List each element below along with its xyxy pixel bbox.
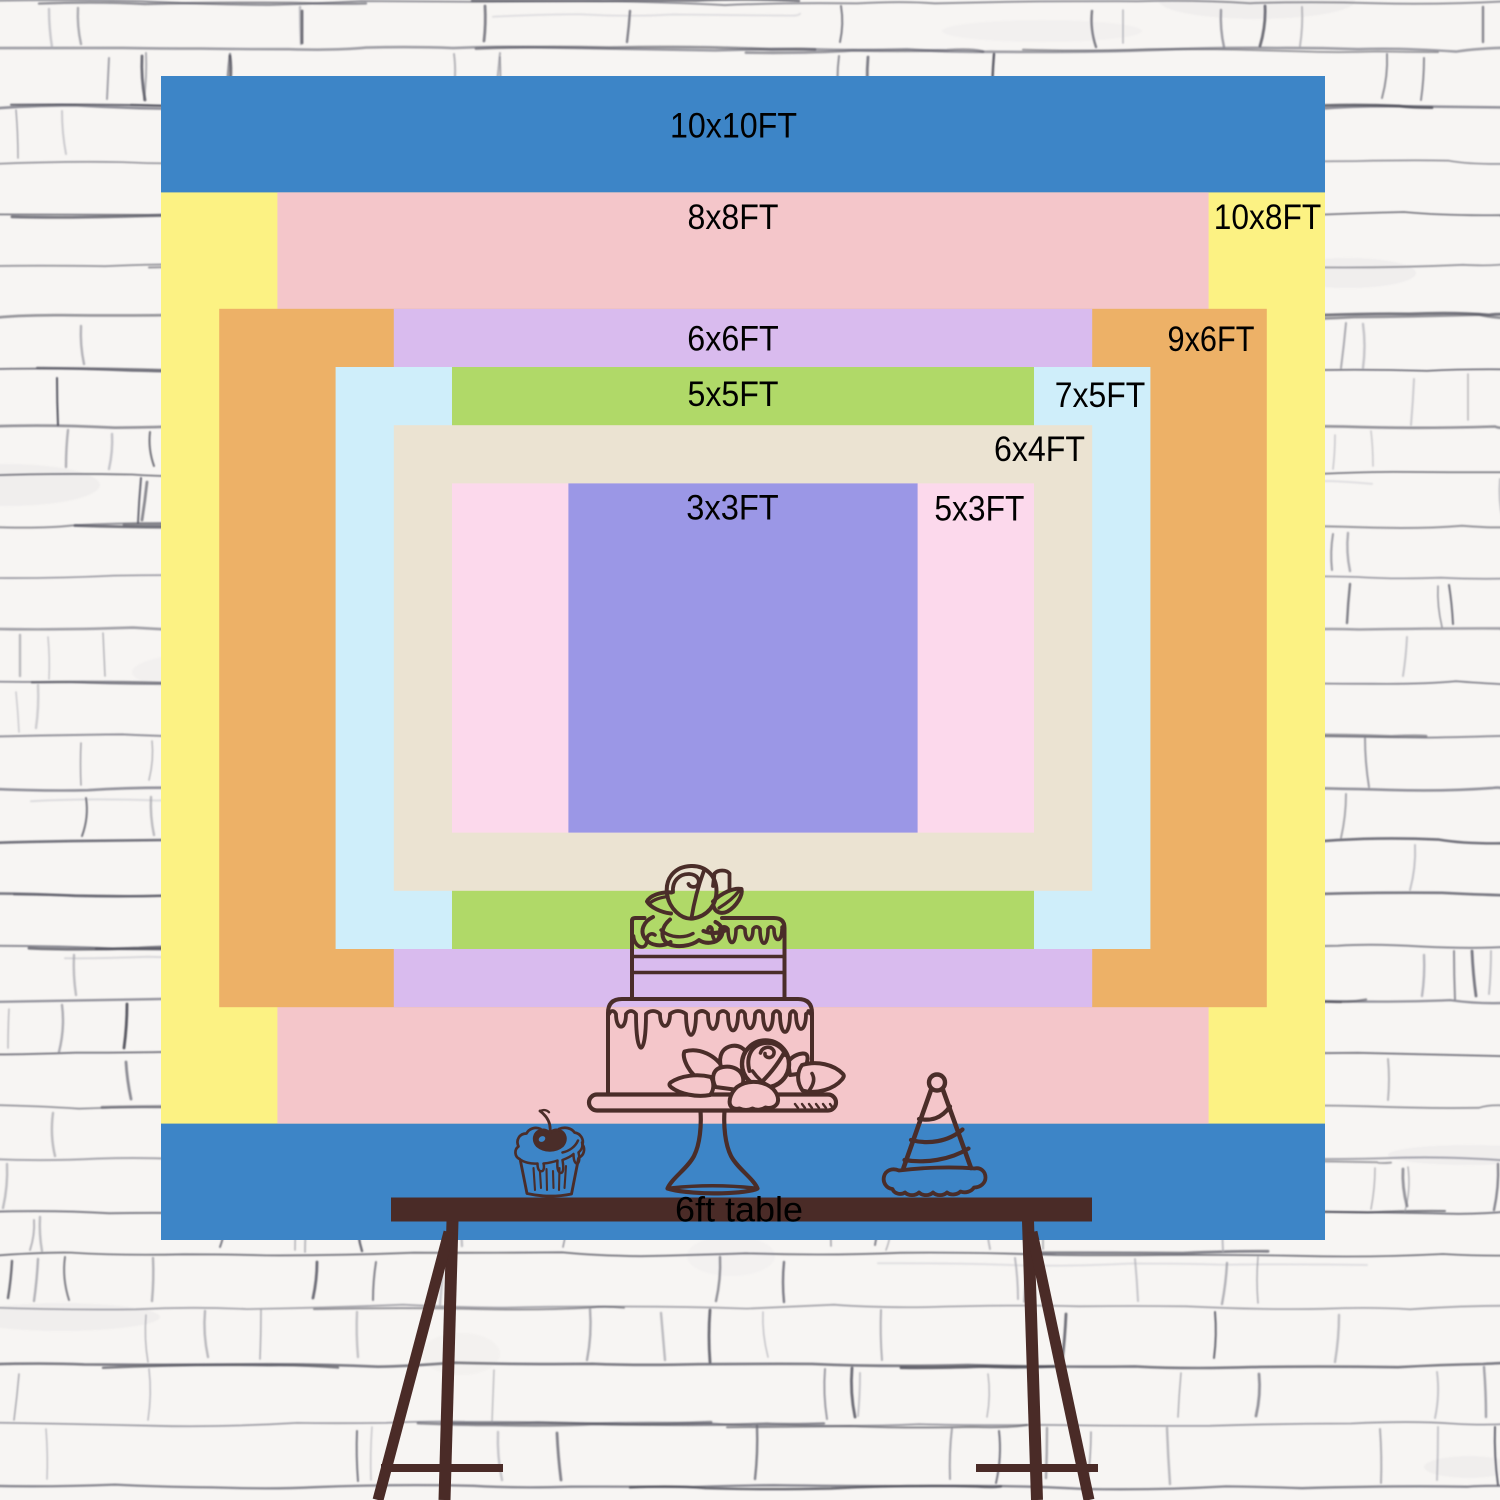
svg-text:6ft table: 6ft table	[675, 1190, 803, 1230]
svg-text:10x8FT: 10x8FT	[1214, 197, 1322, 237]
svg-text:8x8FT: 8x8FT	[688, 197, 779, 237]
svg-text:5x3FT: 5x3FT	[934, 489, 1024, 529]
svg-text:10x10FT: 10x10FT	[670, 106, 797, 146]
svg-text:7x5FT: 7x5FT	[1055, 375, 1146, 415]
svg-text:9x6FT: 9x6FT	[1168, 319, 1255, 359]
svg-text:5x5FT: 5x5FT	[688, 374, 779, 414]
svg-text:3x3FT: 3x3FT	[686, 488, 779, 528]
svg-text:6x4FT: 6x4FT	[994, 429, 1085, 469]
svg-text:6x6FT: 6x6FT	[687, 319, 779, 359]
